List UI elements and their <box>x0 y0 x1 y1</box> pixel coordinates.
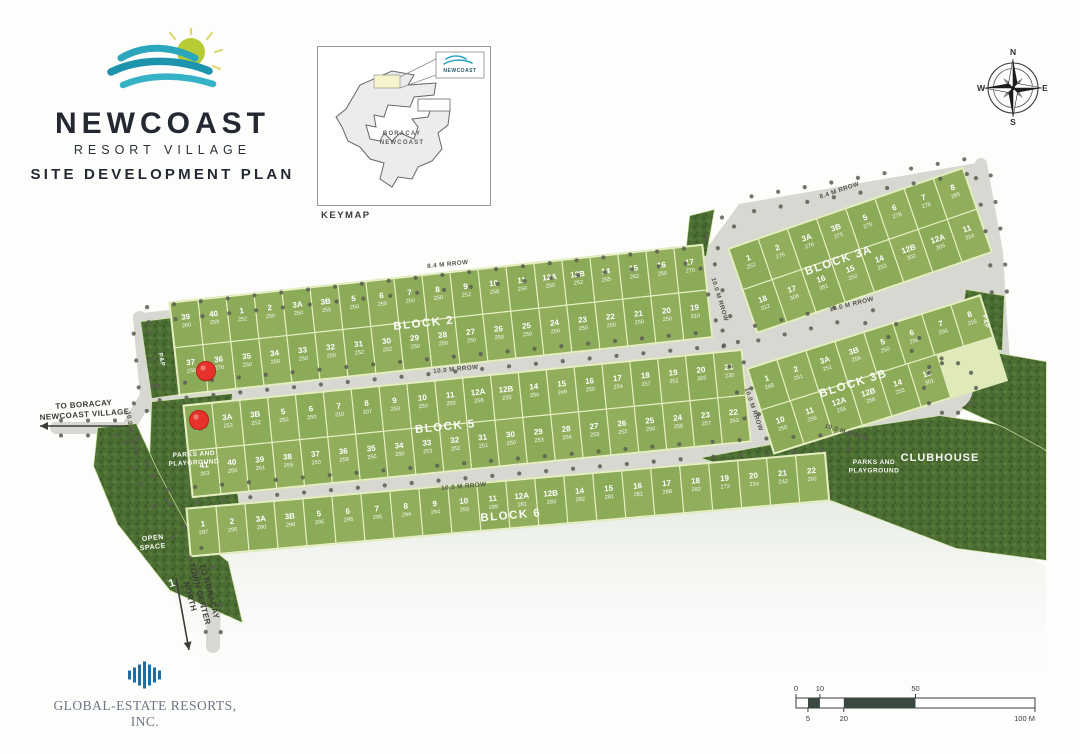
lot-number-block-6-16: 16 <box>633 481 643 491</box>
tree-dot <box>765 451 769 455</box>
lot-number-block-6-3B: 3B <box>284 511 295 521</box>
tree-dot <box>704 237 708 241</box>
lot-area: 257 <box>641 381 651 388</box>
lot-number-block-5-39: 39 <box>255 455 265 465</box>
tree-dot <box>779 318 783 322</box>
lot-area: 281 <box>605 494 615 501</box>
tree-dot <box>173 317 177 321</box>
tree-dot <box>517 471 521 475</box>
lot-area: 250 <box>411 344 421 351</box>
tree-dot <box>274 478 278 482</box>
tree-dot <box>720 215 724 219</box>
tree-dot <box>279 290 283 294</box>
tree-dot <box>764 436 768 440</box>
tree-dot <box>442 288 446 292</box>
tree-dot <box>576 273 580 277</box>
tree-dot <box>722 343 726 347</box>
tree-dot <box>227 311 231 315</box>
lot-area: 255 <box>590 432 600 439</box>
tree-dot <box>706 292 710 296</box>
tree-dot <box>548 261 552 265</box>
lot-area: 250 <box>390 406 400 413</box>
lot-area: 250 <box>663 316 673 323</box>
tree-dot <box>152 474 156 478</box>
lot-area: 250 <box>406 298 416 305</box>
tree-dot <box>480 367 484 371</box>
tree-dot <box>597 449 601 453</box>
tree-dot <box>264 373 268 377</box>
lot-area: 258 <box>339 457 349 464</box>
lot-area: 255 <box>322 307 332 314</box>
keymap-region-label: BORACAY <box>383 131 421 137</box>
lot-number-block-2-22: 22 <box>606 312 616 322</box>
lot-area: 250 <box>378 301 388 308</box>
tree-dot <box>713 262 717 266</box>
lot-area: 250 <box>266 313 276 320</box>
tree-dot <box>132 332 136 336</box>
lot-number-block-5-31: 31 <box>478 432 488 442</box>
lot-area: 258 <box>490 289 500 296</box>
tree-dot <box>494 267 498 271</box>
lot-area: 250 <box>327 353 337 360</box>
tree-dot <box>170 535 174 539</box>
tree-dot <box>426 372 430 376</box>
tree-dot <box>410 481 414 485</box>
tree-dot <box>440 273 444 277</box>
tree-dot <box>603 270 607 274</box>
lot-area: 250 <box>299 356 309 363</box>
lot-number-block-6-22: 22 <box>807 466 817 476</box>
tree-dot <box>641 351 645 355</box>
tree-dot <box>360 282 364 286</box>
tree-dot <box>182 525 186 529</box>
tree-dot <box>505 349 509 353</box>
lot-area: 250 <box>551 328 561 335</box>
lot-area: 230 <box>725 373 735 380</box>
lot-area: 294 <box>431 509 441 516</box>
lot-area: 250 <box>546 283 556 290</box>
scalebar-label: 20 <box>840 714 848 723</box>
tree-dot <box>383 483 387 487</box>
tree-dot <box>237 375 241 379</box>
tree-dot <box>652 460 656 464</box>
lot-number-block-5-12A: 12A <box>470 387 486 397</box>
lot-area: 250 <box>434 295 444 302</box>
tree-dot <box>858 191 862 195</box>
tree-dot <box>158 398 162 402</box>
tree-dot <box>489 459 493 463</box>
tree-dot <box>328 473 332 477</box>
tree-dot <box>938 177 942 181</box>
tree-dot <box>571 467 575 471</box>
brand-header: NEWCOAST RESORT VILLAGE SITE DEVELOPMENT… <box>25 28 300 183</box>
tree-dot <box>436 478 440 482</box>
compass-hub <box>1011 86 1015 90</box>
compass-letter-W: W <box>977 83 986 93</box>
lot-area: 270 <box>215 365 225 372</box>
tree-dot <box>667 334 671 338</box>
tree-dot <box>145 305 149 309</box>
tree-dot <box>640 336 644 340</box>
tree-dot <box>425 357 429 361</box>
tree-dot <box>210 565 214 569</box>
tree-dot <box>1003 262 1007 266</box>
tree-dot <box>806 312 810 316</box>
tree-dot <box>164 498 168 502</box>
tree-dot <box>927 401 931 405</box>
lot-number-block-2-3B: 3B <box>320 297 331 307</box>
tree-dot <box>184 396 188 400</box>
lot-number-block-5-27: 27 <box>589 421 599 431</box>
marker-dot-icon <box>197 362 216 381</box>
lot-area: 252 <box>462 292 472 299</box>
lot-area: 259 <box>210 319 220 326</box>
lot-area: 262 <box>630 274 640 281</box>
bar-diamond-icon <box>128 662 161 689</box>
lot-number-block-5-12B: 12B <box>498 384 514 394</box>
developer-logo: GLOBAL-ESTATE RESORTS, INC. <box>38 660 252 730</box>
lot-area: 257 <box>701 421 711 428</box>
tree-dot <box>361 297 365 301</box>
brand-subtitle: RESORT VILLAGE <box>25 143 300 157</box>
tree-dot <box>221 497 225 501</box>
tree-dot <box>188 555 192 559</box>
tree-dot <box>238 390 242 394</box>
tree-dot <box>856 176 860 180</box>
lot-number-block-2-27: 27 <box>466 327 476 337</box>
lot-area: 252 <box>618 429 628 436</box>
tree-dot <box>613 339 617 343</box>
tree-dot <box>625 462 629 466</box>
tree-dot <box>113 418 117 422</box>
tree-dot <box>319 382 323 386</box>
tree-dot <box>335 299 339 303</box>
tree-dot <box>199 299 203 303</box>
tree-dot <box>147 320 151 324</box>
tree-dot <box>791 435 795 439</box>
lot-number-block-5-30: 30 <box>506 430 516 440</box>
lot-number-block-2-37: 37 <box>186 357 196 367</box>
tree-dot <box>408 466 412 470</box>
tree-dot <box>965 172 969 176</box>
scalebar-dark-segment <box>844 698 916 708</box>
lot-area: 250 <box>187 368 197 375</box>
tree-dot <box>123 441 127 445</box>
lot-area: 255 <box>602 277 612 284</box>
tree-dot <box>698 266 702 270</box>
lot-area: 252 <box>355 350 365 357</box>
tree-dot <box>752 209 756 213</box>
tree-dot <box>211 393 215 397</box>
lot-number-block-6-14: 14 <box>575 486 585 496</box>
lot-number-block-5-10: 10 <box>417 393 427 403</box>
tree-dot <box>145 409 149 413</box>
tree-dot <box>317 368 321 372</box>
lot-area: 250 <box>635 319 645 326</box>
tree-dot <box>156 383 160 387</box>
lot-number-block-5-38: 38 <box>283 452 293 462</box>
tree-dot <box>1005 289 1009 293</box>
compass-letter-N: N <box>1010 47 1016 57</box>
area-label: BLOCK 1 <box>121 577 177 604</box>
tree-dot <box>219 603 223 607</box>
tree-dot <box>306 287 310 291</box>
tree-dot <box>623 447 627 451</box>
compass-letter-S: S <box>1010 117 1016 126</box>
lot-area: 250 <box>518 286 528 293</box>
tree-dot <box>398 360 402 364</box>
tree-dot <box>969 371 973 375</box>
lot-area: 250 <box>446 401 456 408</box>
lot-number-block-5-26: 26 <box>617 419 627 429</box>
tree-dot <box>628 252 632 256</box>
tree-dot <box>979 203 983 207</box>
marker-shine <box>193 414 198 419</box>
tree-dot <box>863 321 867 325</box>
lot-number-block-5-33: 33 <box>422 438 432 448</box>
tree-dot <box>522 279 526 283</box>
tree-dot <box>131 466 135 470</box>
lot-number-block-5-20: 20 <box>696 365 706 375</box>
lot-area: 252 <box>251 420 261 427</box>
tree-dot <box>275 493 279 497</box>
callout-line <box>400 59 436 77</box>
tree-dot <box>988 263 992 267</box>
marker-dot-icon <box>190 411 209 430</box>
tree-dot <box>301 475 305 479</box>
tree-dot <box>252 293 256 297</box>
lot-number-block-5-36: 36 <box>338 446 348 456</box>
area-label: PARKS AND <box>853 459 895 466</box>
tree-dot <box>753 324 757 328</box>
tree-dot <box>308 302 312 306</box>
lot-area: 251 <box>479 443 489 450</box>
tree-dot <box>714 318 718 322</box>
tree-dot <box>388 294 392 298</box>
scalebar-label: 50 <box>911 684 919 693</box>
lot-number-block-2-34: 34 <box>270 348 280 358</box>
tree-dot <box>885 186 889 190</box>
page-title: SITE DEVELOPMENT PLAN <box>25 166 300 183</box>
tree-dot <box>940 361 944 365</box>
tree-dot <box>534 362 538 366</box>
tree-dot <box>346 380 350 384</box>
tree-dot <box>940 411 944 415</box>
tree-dot <box>871 308 875 312</box>
lot-number-block-2-39: 39 <box>181 312 191 322</box>
tree-dot <box>152 384 156 388</box>
lot-number-block-5-23: 23 <box>701 410 711 420</box>
lot-area: 256 <box>530 392 540 399</box>
tree-dot <box>265 388 269 392</box>
tree-dot <box>779 204 783 208</box>
arrowhead-icon <box>40 422 48 430</box>
area-label: PLAYGROUND <box>849 468 900 475</box>
tree-dot <box>147 330 151 334</box>
lot-number-block-6-11: 11 <box>488 494 498 504</box>
tree-dot <box>657 264 661 268</box>
lot-area: 254 <box>613 384 623 391</box>
lot-number-block-2-26: 26 <box>494 324 504 334</box>
tree-dot <box>737 438 741 442</box>
newcoast-logo <box>63 28 263 100</box>
tree-dot <box>549 276 553 280</box>
lot-area: 259 <box>284 462 294 469</box>
tree-dot <box>145 462 149 466</box>
area-label: CLUBHOUSE <box>901 452 980 464</box>
lot-number-block-2-36: 36 <box>214 354 224 364</box>
tree-dot <box>756 338 760 342</box>
global-estate-icon <box>38 660 252 690</box>
lot-area: 252 <box>574 280 584 287</box>
lot-area: 210 <box>335 412 345 419</box>
tree-dot <box>630 267 634 271</box>
tree-dot <box>59 433 63 437</box>
tree-dot <box>695 346 699 350</box>
tree-dot <box>993 200 997 204</box>
lot-number-block-6-3A: 3A <box>255 514 266 524</box>
scale-bar: 01050520100 M <box>788 676 1058 728</box>
road-label: 8.4 M RROW <box>427 259 469 270</box>
lot-area: 265 <box>697 375 707 382</box>
developer-name: GLOBAL-ESTATE RESORTS, INC. <box>38 698 252 730</box>
tree-dot <box>469 285 473 289</box>
tree-dot <box>371 362 375 366</box>
tree-dot <box>86 418 90 422</box>
lot-area: 250 <box>228 468 238 475</box>
lot-number-block-6-17: 17 <box>662 478 672 488</box>
lot-area: 250 <box>418 403 428 410</box>
tree-dot <box>969 401 973 405</box>
tree-dot <box>86 433 90 437</box>
tree-dot <box>463 476 467 480</box>
lot-area: 261 <box>256 465 266 472</box>
lot-area: 295 <box>315 519 325 526</box>
lot-area: 289 <box>489 504 499 511</box>
lot-area: 295 <box>344 517 354 524</box>
tree-dot <box>776 190 780 194</box>
tree-dot <box>912 181 916 185</box>
lot-number-block-6-19: 19 <box>720 473 730 483</box>
lot-number-block-5-22: 22 <box>728 407 738 417</box>
lot-number-block-2-35: 35 <box>242 351 252 361</box>
tree-dot <box>219 630 223 634</box>
lot-number-block-5-15: 15 <box>557 379 567 389</box>
tree-dot <box>138 481 142 485</box>
tree-dot <box>168 502 172 506</box>
map-notch <box>418 99 450 111</box>
tree-dot <box>544 469 548 473</box>
tree-dot <box>749 194 753 198</box>
tree-dot <box>805 200 809 204</box>
lot-area: 258 <box>674 423 684 430</box>
lot-area: 270 <box>686 268 696 275</box>
lot-area: 292 <box>807 476 817 483</box>
arrowhead-icon <box>184 641 192 650</box>
keymap-box: NEWCOASTBORACAYNEWCOAST <box>317 46 491 206</box>
lot-area: 250 <box>271 359 281 366</box>
lot-number-block-6-20: 20 <box>749 471 759 481</box>
tree-dot <box>668 349 672 353</box>
tree-dot <box>543 454 547 458</box>
tree-dot <box>172 302 176 306</box>
lot-area: 250 <box>307 414 317 421</box>
tree-dot <box>818 433 822 437</box>
tree-dot <box>496 282 500 286</box>
tree-dot <box>732 224 736 228</box>
tree-dot <box>939 356 943 360</box>
lot-area: 250 <box>506 440 516 447</box>
tree-dot <box>193 485 197 489</box>
lot-number-block-2-24: 24 <box>550 318 560 328</box>
lot-area: 252 <box>383 347 393 354</box>
lot-area: 252 <box>451 446 461 453</box>
lot-number-block-5-34: 34 <box>394 441 404 451</box>
lot-number-block-5-32: 32 <box>450 435 460 445</box>
lot-number-block-6-15: 15 <box>604 484 614 494</box>
tree-dot <box>292 385 296 389</box>
tree-dot <box>166 487 170 491</box>
lot-area: 250 <box>243 362 253 369</box>
scalebar-dark-segment <box>808 698 820 708</box>
tree-dot <box>290 370 294 374</box>
keymap-drawing: NEWCOASTBORACAYNEWCOAST <box>318 47 490 205</box>
lot-number-block-2-19: 19 <box>690 303 700 313</box>
keymap-region-label: NEWCOAST <box>380 140 425 146</box>
tree-dot <box>679 457 683 461</box>
site-development-plan-page: 3926040259125222503A2503B255525062507250… <box>0 0 1080 754</box>
lot-number-block-2-40: 40 <box>209 309 219 319</box>
tree-dot <box>614 354 618 358</box>
lot-area: 263 <box>200 471 210 478</box>
tree-dot <box>927 371 931 375</box>
tree-dot <box>989 173 993 177</box>
tree-dot <box>956 361 960 365</box>
lot-number-block-2-25: 25 <box>522 321 532 331</box>
brand-name: NEWCOAST <box>25 107 300 141</box>
tree-dot <box>974 176 978 180</box>
lot-number-block-2-32: 32 <box>326 342 336 352</box>
tree-dot <box>183 381 187 385</box>
tree-dot <box>894 322 898 326</box>
lot-number-block-6-18: 18 <box>691 476 701 486</box>
lot-area: 290 <box>257 524 267 531</box>
tree-dot <box>711 455 715 459</box>
lot-number-block-5-35: 35 <box>366 444 376 454</box>
tree-dot <box>387 279 391 283</box>
scalebar-label: 0 <box>794 684 798 693</box>
tree-dot <box>200 314 204 318</box>
tree-dot <box>956 411 960 415</box>
tree-dot <box>650 445 654 449</box>
tree-dot <box>710 440 714 444</box>
tree-dot <box>399 375 403 379</box>
tree-dot <box>886 335 890 339</box>
tree-dot <box>742 416 746 420</box>
lot-number-block-2-23: 23 <box>578 315 588 325</box>
lot-number-block-6-12A: 12A <box>514 491 530 501</box>
lot-area: 250 <box>395 451 405 458</box>
tree-dot <box>194 500 198 504</box>
lot-area: 263 <box>729 418 739 425</box>
tree-dot <box>149 357 153 361</box>
lot-area: 250 <box>658 271 668 278</box>
lot-area: 288 <box>662 489 672 496</box>
tree-dot <box>909 349 913 353</box>
tree-dot <box>716 246 720 250</box>
tree-dot <box>962 157 966 161</box>
tree-dot <box>344 365 348 369</box>
